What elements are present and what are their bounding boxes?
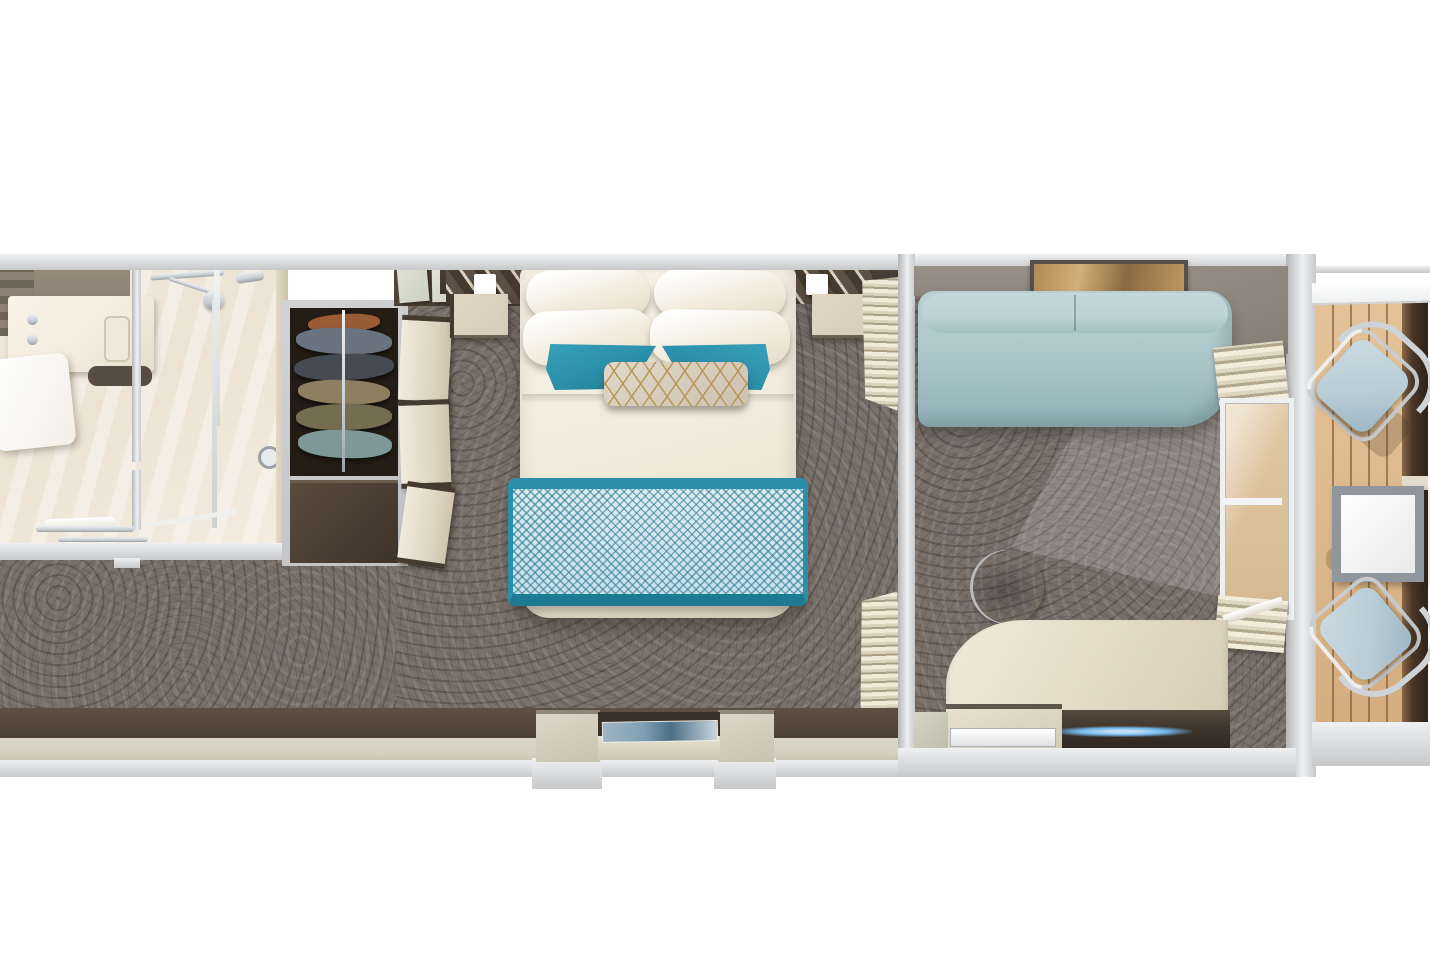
balcony-bottom-wall — [1312, 722, 1430, 766]
sitting-bottom-wall — [898, 748, 1296, 777]
desk-led-strip — [1052, 726, 1192, 737]
balcony-side-table — [1332, 486, 1424, 582]
bathroom-door-tab — [114, 558, 140, 568]
sliding-glass-door — [1220, 398, 1294, 620]
closet-door-open — [398, 399, 451, 489]
sofa-back-seam — [1074, 295, 1076, 331]
gold-bolster-pillow — [604, 362, 748, 406]
bathroom-divider-wall-lower — [132, 470, 141, 530]
closet-door-open — [398, 315, 453, 407]
nightstand-right — [812, 294, 870, 338]
towel-rail2-icon — [58, 537, 148, 542]
toilet — [0, 352, 77, 452]
bedroom-sitting-divider-wall — [898, 254, 915, 777]
glass-door-crossbar — [1222, 498, 1282, 505]
wall-lamp-icon — [806, 274, 828, 295]
entry-door-tab-right — [714, 758, 776, 789]
round-stool — [970, 550, 1044, 624]
top-outer-wall — [0, 254, 905, 270]
corridor-carpet — [0, 556, 450, 712]
niche-artwork — [602, 720, 718, 743]
nightstand-left — [450, 294, 508, 338]
closet-cabinet — [290, 480, 398, 563]
faucet-handle-icon — [27, 334, 38, 345]
window-curtain-top — [1213, 341, 1289, 406]
bathroom-bottom-wall — [0, 543, 290, 560]
sink-basin — [104, 316, 130, 362]
shower-glass-door — [212, 300, 217, 528]
faucet-icon — [27, 314, 38, 325]
entry-jamb-right — [718, 710, 774, 762]
balcony-top-edge — [1316, 266, 1430, 273]
sitting-floor-strip — [914, 712, 948, 752]
bathroom-divider-wall — [132, 262, 141, 462]
entry-door-tab-left — [532, 758, 602, 789]
balcony-partition — [1312, 281, 1430, 305]
shelf-tray — [950, 728, 1056, 747]
entry-jamb-left — [536, 710, 600, 762]
vanity-shadow — [88, 366, 152, 386]
teal-diamond-bed-runner — [508, 478, 808, 606]
closet-rail-icon — [342, 310, 345, 472]
wall-lamp-icon — [474, 274, 496, 295]
towel-rail-icon — [36, 526, 134, 532]
stateroom-floor-plan — [0, 0, 1430, 953]
